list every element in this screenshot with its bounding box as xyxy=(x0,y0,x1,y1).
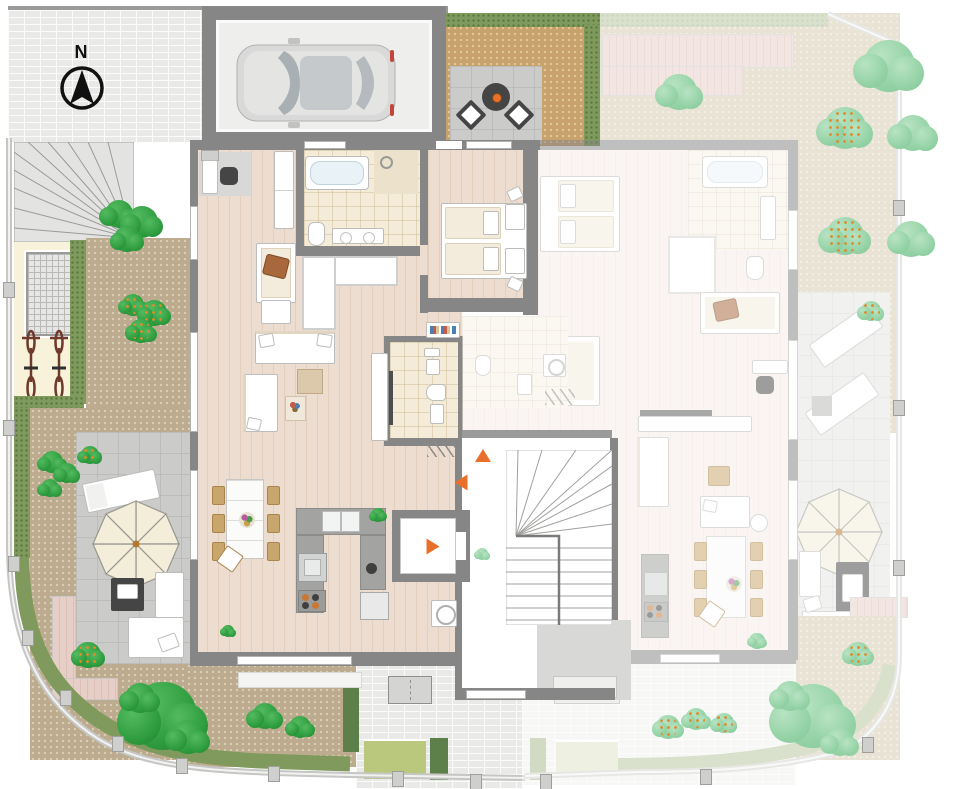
elevator-door xyxy=(456,532,466,560)
site-floor-plan: N xyxy=(0,0,956,789)
wall xyxy=(462,430,612,438)
elevator-cab xyxy=(400,518,456,574)
entry-door xyxy=(466,690,526,699)
staircase xyxy=(506,450,612,625)
